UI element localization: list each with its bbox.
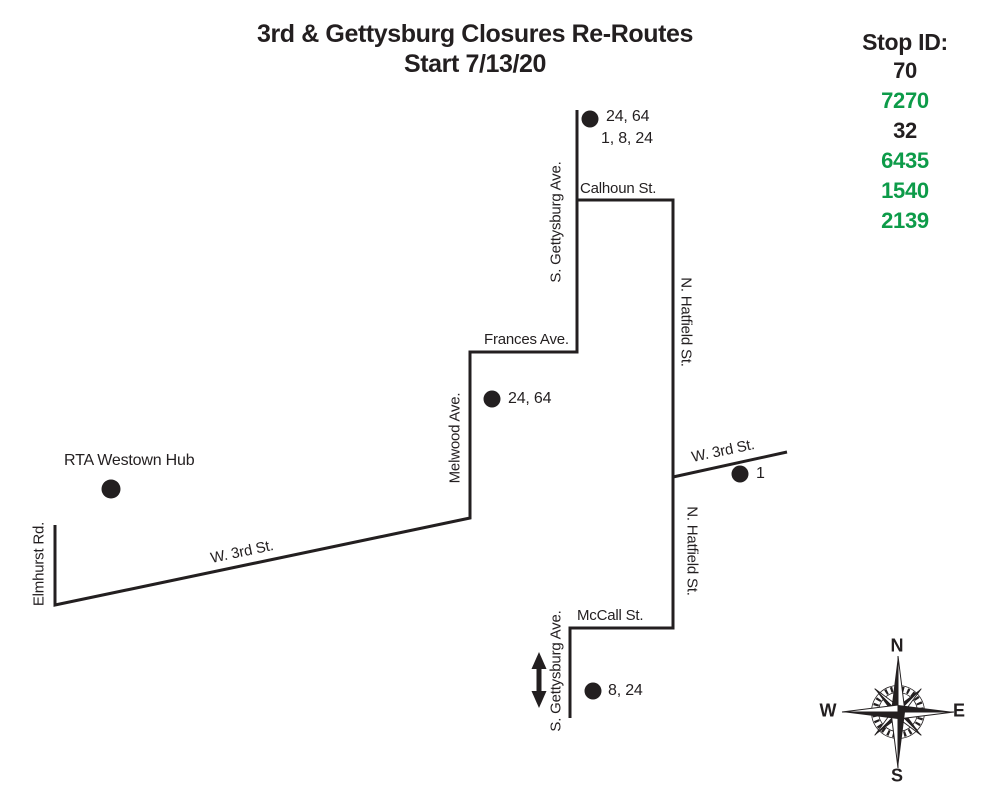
stop-route-east: 1 xyxy=(756,465,765,483)
stop-id-item: 1540 xyxy=(830,176,980,206)
stop-dot-melwood xyxy=(484,391,501,408)
street-label-s-gettysburg-top: S. Gettysburg Ave. xyxy=(548,161,565,282)
compass-rose-icon xyxy=(842,656,954,768)
stop-id-panel: Stop ID: 70 7270 32 6435 1540 2139 xyxy=(830,28,980,236)
street-line-west-reroute xyxy=(55,110,577,605)
street-label-calhoun: Calhoun St. xyxy=(580,180,656,197)
street-line-east-reroute xyxy=(570,200,673,718)
street-label-s-gettysburg-bottom: S. Gettysburg Ave. xyxy=(548,610,565,731)
reroute-map: 3rd & Gettysburg Closures Re-Routes Star… xyxy=(0,0,1000,800)
hub-label: RTA Westown Hub xyxy=(64,452,194,470)
stop-routes-melwood: 24, 64 xyxy=(508,390,551,408)
stop-routes-top-line1: 24, 64 xyxy=(606,108,649,126)
street-label-elmhurst: Elmhurst Rd. xyxy=(31,522,48,606)
two-way-arrow-icon xyxy=(532,652,547,708)
hub-dot xyxy=(102,480,121,499)
compass-label-west: W xyxy=(820,701,837,722)
street-label-frances: Frances Ave. xyxy=(484,331,569,348)
compass-label-east: E xyxy=(953,701,965,722)
stop-id-item: 2139 xyxy=(830,206,980,236)
street-label-n-hatfield-lower: N. Hatfield St. xyxy=(684,506,701,596)
map-title-line2: Start 7/13/20 xyxy=(150,49,800,79)
stop-id-header: Stop ID: xyxy=(830,28,980,56)
compass-label-north: N xyxy=(891,636,904,657)
street-label-n-hatfield-upper: N. Hatfield St. xyxy=(678,277,695,367)
stop-id-item: 6435 xyxy=(830,146,980,176)
map-title-line1: 3rd & Gettysburg Closures Re-Routes xyxy=(150,19,800,49)
stop-dot-w3rd-east xyxy=(732,466,749,483)
stop-id-item: 70 xyxy=(830,56,980,86)
stop-dot-gettysburg-top xyxy=(582,111,599,128)
stop-id-item: 7270 xyxy=(830,86,980,116)
stop-dot-gettysburg-south xyxy=(585,683,602,700)
stop-routes-south: 8, 24 xyxy=(608,682,643,700)
compass-label-south: S xyxy=(891,766,903,787)
stop-routes-top-line2: 1, 8, 24 xyxy=(601,130,653,148)
street-label-mccall: McCall St. xyxy=(577,607,643,624)
map-title: 3rd & Gettysburg Closures Re-Routes Star… xyxy=(150,19,800,79)
stop-id-item: 32 xyxy=(830,116,980,146)
street-label-melwood: Melwood Ave. xyxy=(447,393,464,484)
